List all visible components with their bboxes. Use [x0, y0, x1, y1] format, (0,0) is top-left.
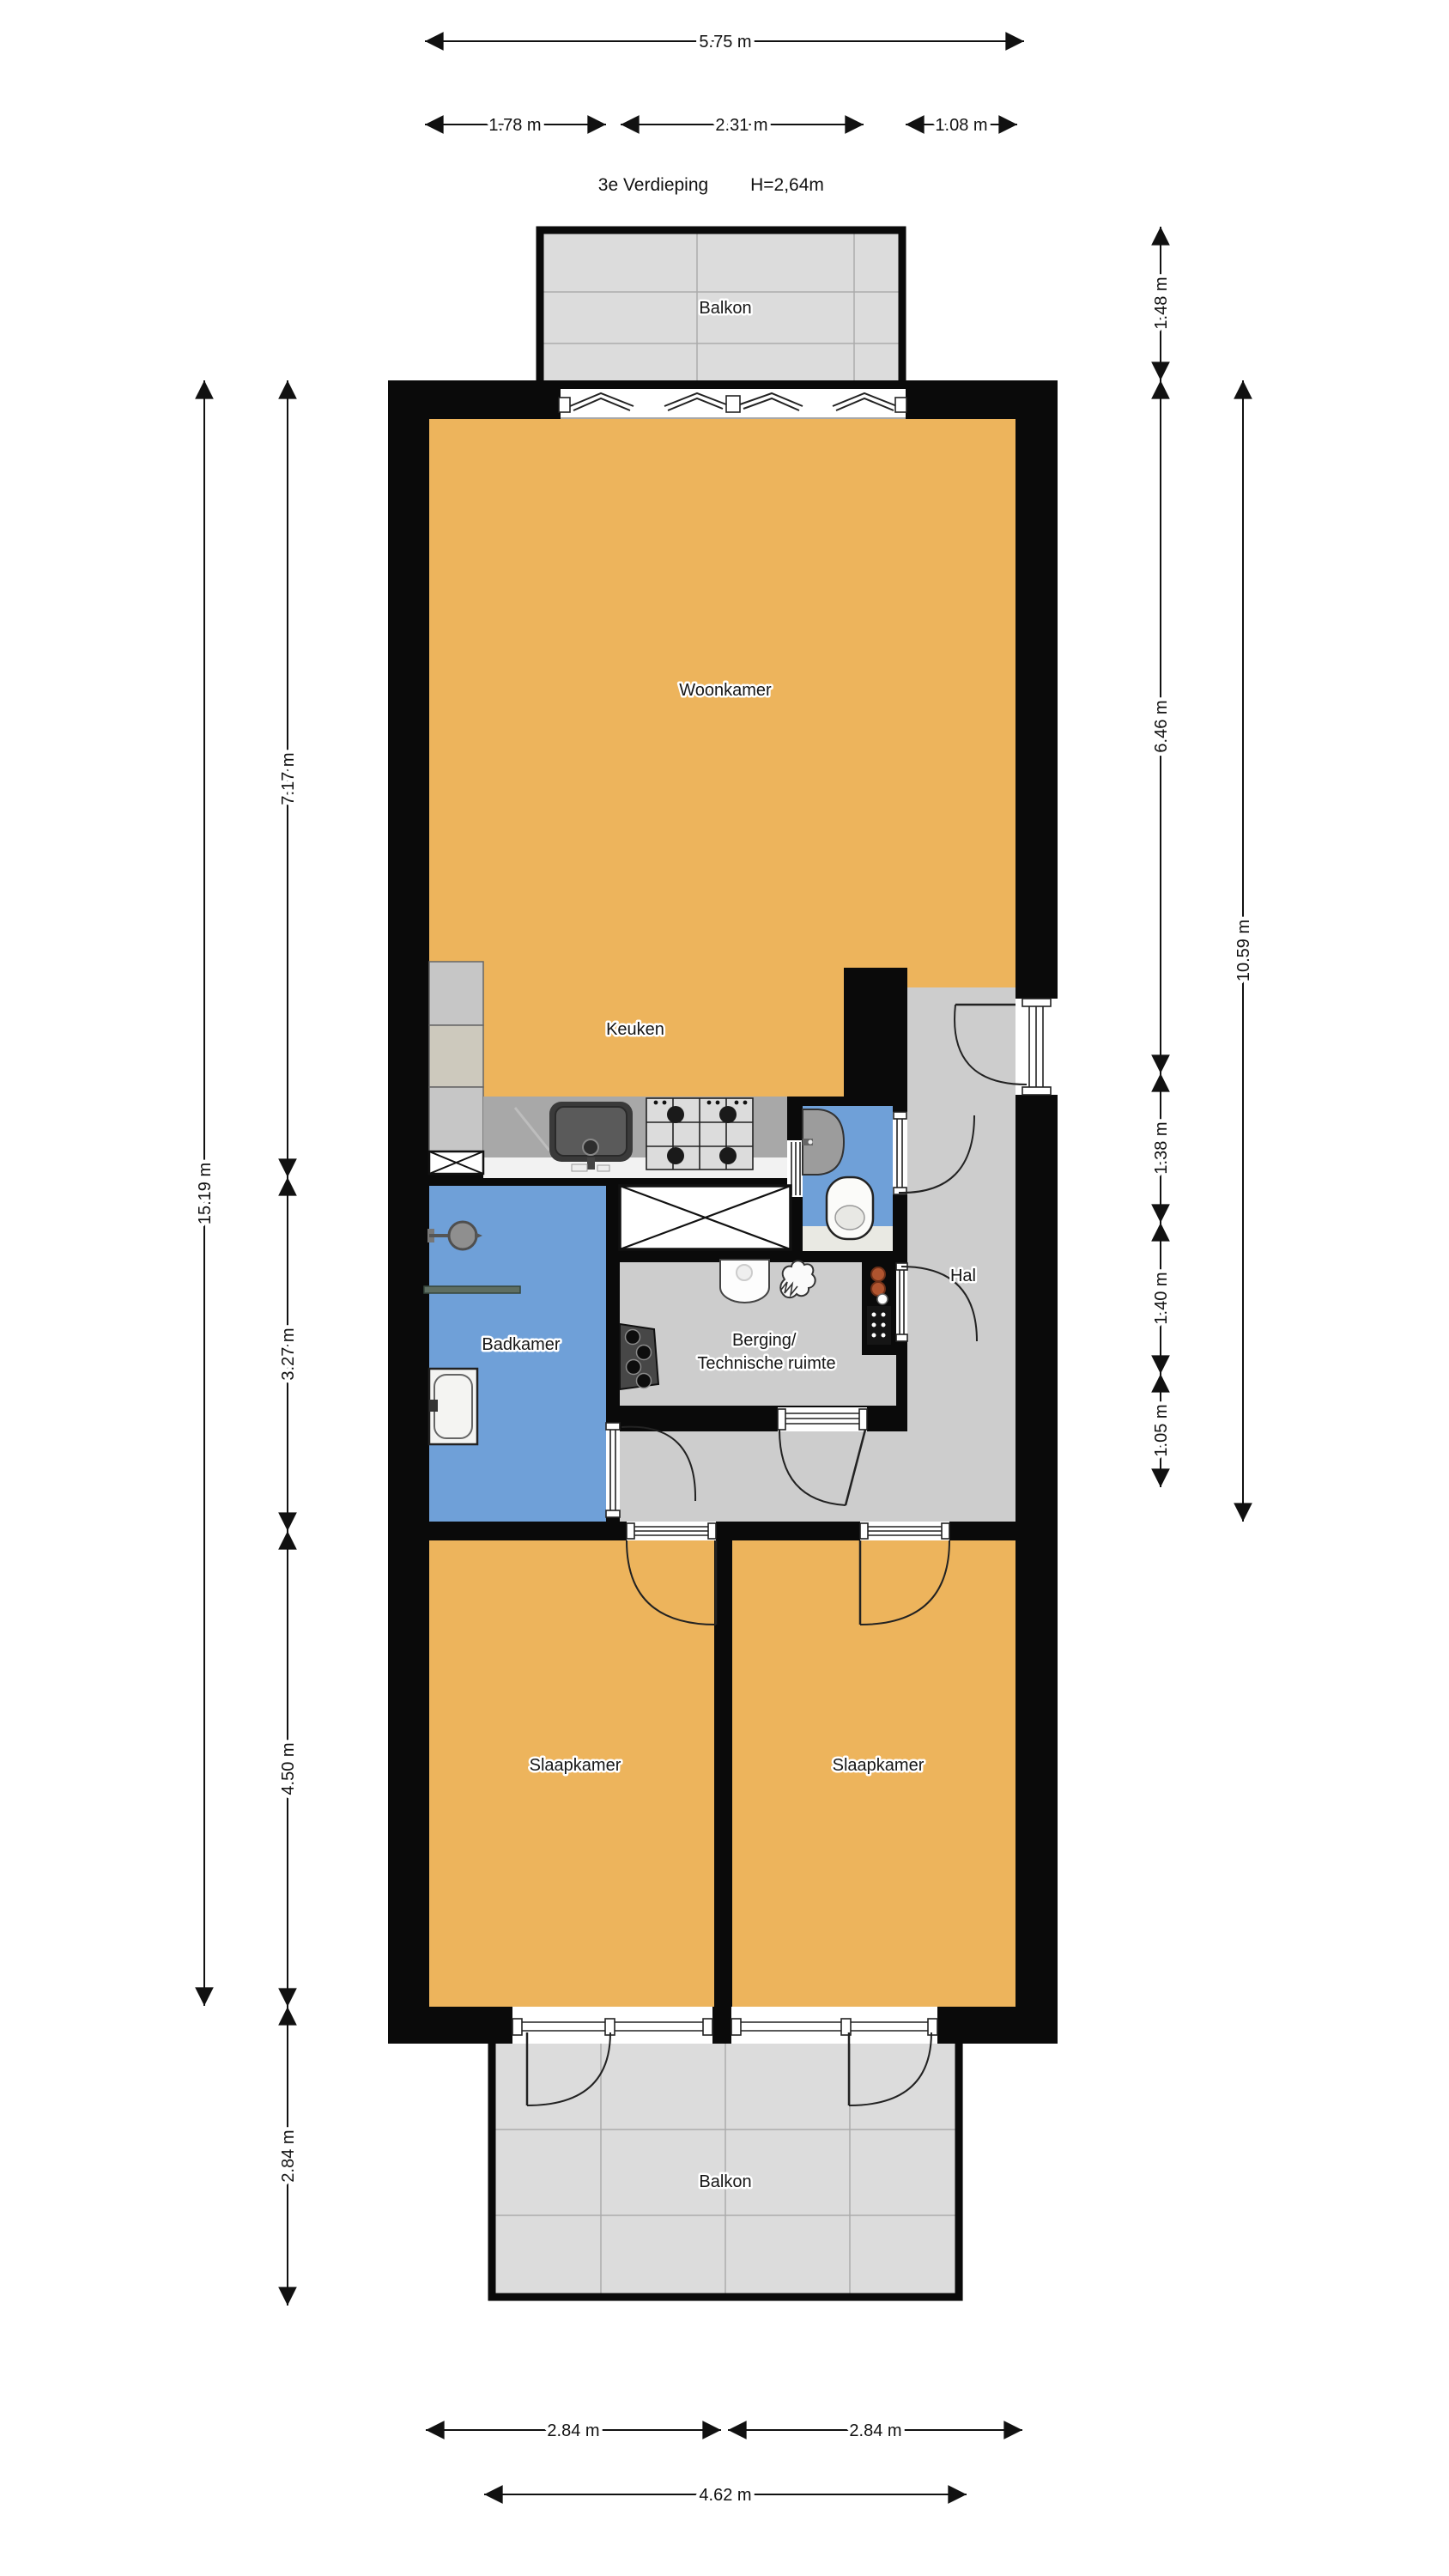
room-label-balkon-bottom: Balkon — [699, 2172, 751, 2191]
floorplan-page: Balkon Balkon — [0, 0, 1449, 2576]
svg-text:1.78 m: 1.78 m — [488, 116, 541, 135]
wall-shaft-block — [844, 968, 907, 1106]
svg-text:4.62 m: 4.62 m — [699, 2486, 751, 2505]
floor-keuken — [429, 987, 844, 1097]
floor-woonkamer — [429, 419, 1016, 987]
washer-unit — [620, 1324, 658, 1389]
dim-top-total: 5.75 m — [425, 33, 1024, 52]
boiler — [720, 1260, 769, 1303]
dim-top-total-label: 5.75 m — [699, 33, 751, 52]
plan-title-floor: 3e Verdieping — [598, 175, 708, 195]
dim-left-bath: 3.27 m — [279, 1177, 298, 1531]
room-label-woonkamer: Woonkamer — [679, 681, 772, 700]
svg-text:1.05 m: 1.05 m — [1152, 1404, 1171, 1456]
svg-text:7.17 m: 7.17 m — [279, 752, 298, 805]
dim-right-balcony: 1.48 m — [1152, 227, 1171, 380]
svg-text:1.38 m: 1.38 m — [1152, 1121, 1171, 1174]
window-post — [726, 396, 740, 412]
svg-text:2.31 m: 2.31 m — [715, 116, 767, 135]
svg-text:1.48 m: 1.48 m — [1152, 276, 1171, 329]
svg-text:1.40 m: 1.40 m — [1152, 1272, 1171, 1324]
dim-right-hall-c: 1.05 m — [1152, 1374, 1171, 1487]
window-post — [895, 398, 906, 412]
dim-top-left: 1.78 m — [425, 116, 606, 135]
dim-right-total: 10.59 m — [1234, 380, 1253, 1522]
living-room-window-band — [559, 389, 906, 419]
balcony-top: Balkon — [540, 227, 906, 389]
sink — [549, 1102, 633, 1171]
dim-top-middle: 2.31 m — [621, 116, 864, 135]
plan-title-height: H=2,64m — [750, 175, 824, 195]
svg-text:15.19 m: 15.19 m — [196, 1163, 215, 1224]
room-label-slaapkamer-right: Slaapkamer — [833, 1756, 925, 1775]
kitchen-cabinet-2 — [429, 1025, 483, 1087]
dim-bottom-bedroom-left: 2.84 m — [426, 2421, 721, 2440]
room-label-hal: Hal — [950, 1267, 976, 1285]
dim-left-living: 7.17 m — [279, 380, 298, 1177]
kitchen-shaft-box — [429, 1151, 483, 1174]
dim-left-total: 15.19 m — [196, 380, 215, 2006]
svg-text:2.84 m: 2.84 m — [849, 2421, 901, 2440]
wall-toilet-bottom — [893, 1193, 907, 1254]
room-label-keuken: Keuken — [606, 1020, 664, 1039]
dim-left-bedroom: 4.50 m — [279, 1531, 298, 2007]
balcony-bottom: Balkon — [488, 2044, 963, 2301]
hall-closet — [620, 1186, 791, 1249]
kitchen-cabinet-3 — [429, 1087, 483, 1151]
toilet-bowl — [827, 1177, 873, 1239]
room-label-badkamer: Badkamer — [482, 1335, 560, 1354]
svg-text:4.50 m: 4.50 m — [279, 1742, 298, 1795]
svg-text:2.84 m: 2.84 m — [279, 2129, 298, 2182]
svg-text:3.27 m: 3.27 m — [279, 1327, 298, 1380]
dim-right-hall-b: 1.40 m — [1152, 1223, 1171, 1374]
towel-rail — [424, 1286, 520, 1293]
svg-text:2.84 m: 2.84 m — [547, 2421, 599, 2440]
toilet-basin — [803, 1109, 844, 1175]
bathtub — [429, 1369, 477, 1444]
dim-top-right: 1.08 m — [906, 116, 1017, 135]
floorplan-canvas: Balkon Balkon — [0, 0, 1449, 2576]
svg-text:1.08 m: 1.08 m — [935, 116, 987, 135]
dim-right-living: 6.46 m — [1152, 380, 1171, 1073]
dim-bottom-bedroom-right: 2.84 m — [728, 2421, 1022, 2440]
room-label-balkon-top: Balkon — [699, 299, 751, 318]
dim-left-balcony: 2.84 m — [279, 2007, 298, 2306]
room-label-slaapkamer-left: Slaapkamer — [530, 1756, 621, 1775]
window-post — [559, 398, 570, 412]
kitchen-cabinet-1 — [429, 962, 483, 1025]
svg-text:10.59 m: 10.59 m — [1234, 920, 1253, 981]
svg-text:6.46 m: 6.46 m — [1152, 700, 1171, 752]
dim-right-hall-a: 1.38 m — [1152, 1073, 1171, 1223]
dim-bottom-balcony: 4.62 m — [484, 2486, 967, 2505]
stove-hob — [646, 1098, 753, 1170]
